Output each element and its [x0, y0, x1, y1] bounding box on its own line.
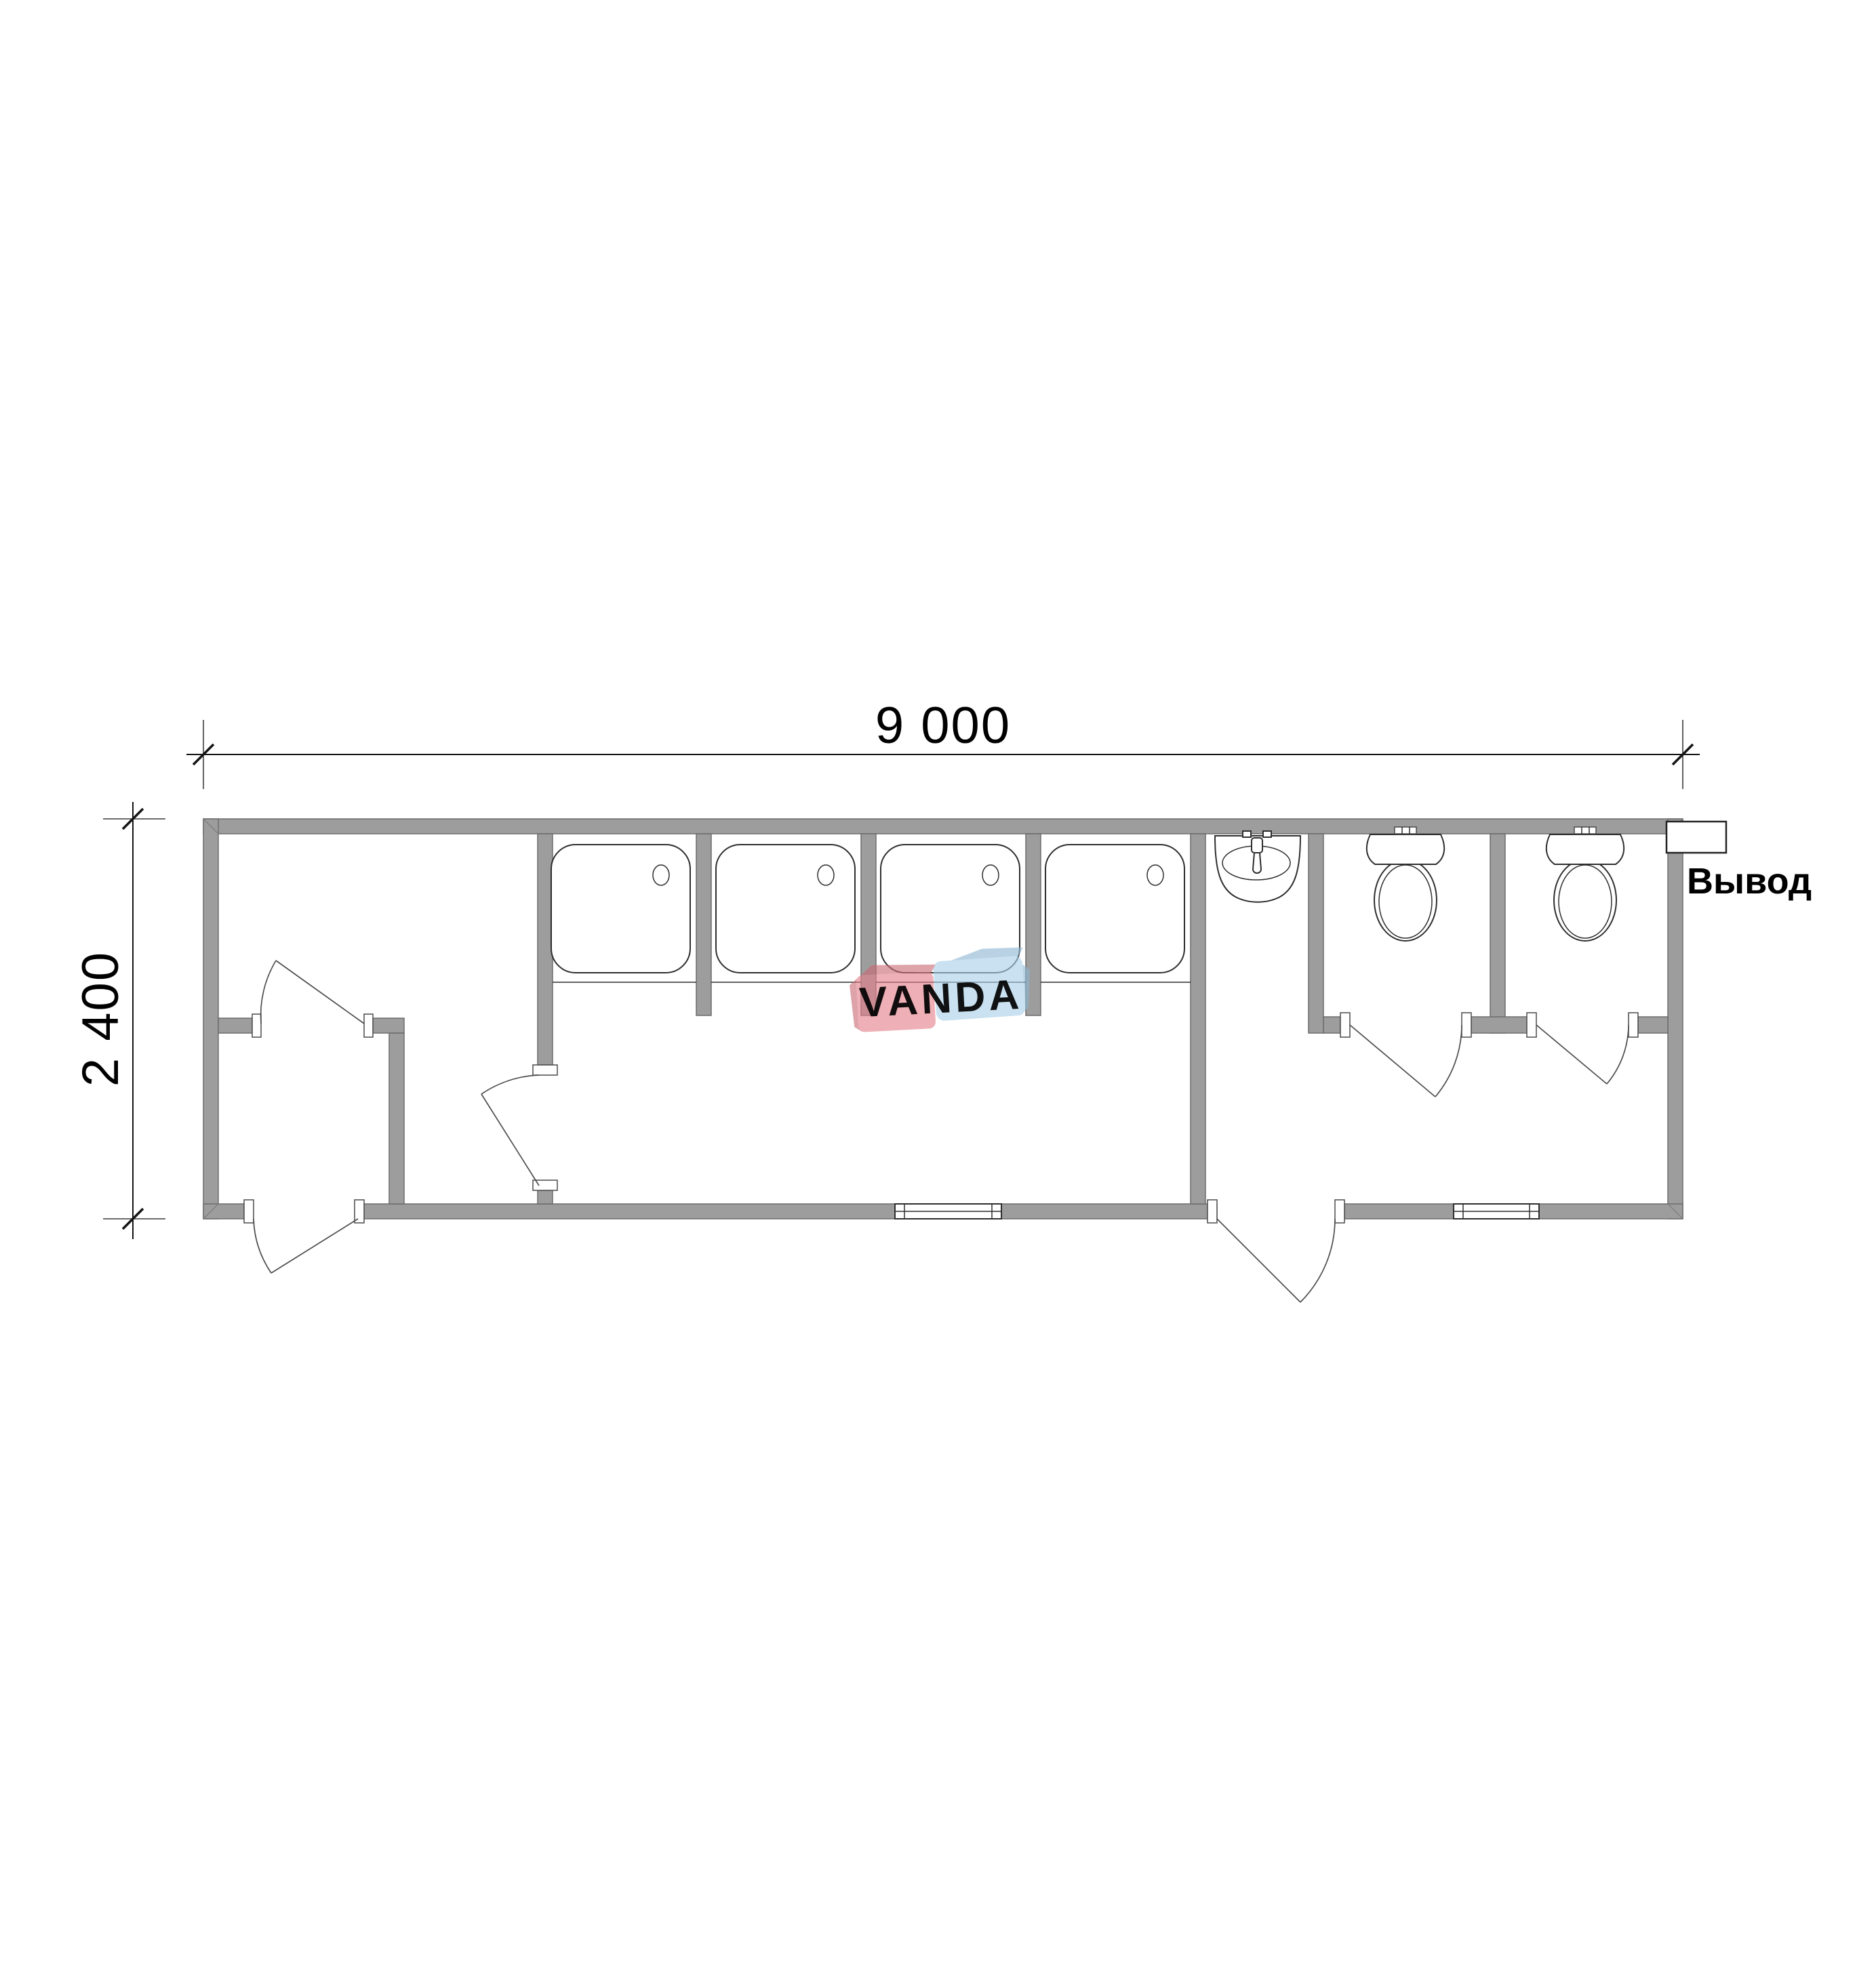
wall-exterior-bottom-seg3 — [1001, 1204, 1217, 1219]
door-leaf — [276, 961, 364, 1024]
wall-vestibule-corner-vertical — [389, 1033, 404, 1204]
floor-plan-page: 9 000 2 400 — [0, 0, 1876, 1976]
jamb-wc1-left — [1340, 1013, 1350, 1037]
door-leaf — [1536, 1025, 1607, 1084]
outlet-label: Вывод — [1687, 861, 1812, 902]
jamb-entrance1-left — [244, 1200, 254, 1223]
door-leaf — [1217, 1219, 1300, 1302]
toilet-cistern — [1367, 834, 1444, 864]
jamb-wc2-left — [1527, 1013, 1536, 1037]
faucet-mount-right — [1263, 831, 1271, 837]
door-wc-stall-1 — [1350, 1025, 1462, 1097]
door-wc-stall-2 — [1536, 1025, 1629, 1084]
wall-exterior-bottom-seg1 — [203, 1204, 244, 1219]
jamb-vestibule-left — [252, 1014, 261, 1037]
wall-shower-room-divider-upper — [538, 834, 553, 1065]
shower-tray-1 — [551, 845, 690, 973]
door-shower-room-interior — [481, 1075, 539, 1186]
jamb-wc2-right — [1629, 1013, 1638, 1037]
washbasin — [1215, 831, 1300, 902]
wall-exterior-right — [1668, 819, 1683, 1219]
wall-wc-front-seg1 — [1323, 1017, 1340, 1033]
floor-plan-drawing: 9 000 2 400 — [0, 0, 1876, 1976]
shower-tray-4 — [1045, 845, 1184, 973]
faucet-spout — [1253, 853, 1261, 873]
outlet-box — [1667, 822, 1726, 853]
shower-tray-2 — [716, 845, 855, 973]
toilet-inlet-vent — [1395, 827, 1416, 834]
toilet-cistern — [1546, 834, 1624, 864]
door-swing-arc — [1607, 1025, 1629, 1084]
dimension-width: 9 000 — [186, 697, 1700, 789]
toilet-bowl-outer — [1554, 860, 1616, 941]
wall-wc1-left — [1309, 834, 1323, 1033]
wall-wc-stall-divider — [1490, 834, 1505, 1033]
door-entrance-right-exterior — [1217, 1219, 1335, 1302]
wall-exterior-bottom-seg2 — [364, 1204, 895, 1219]
wall-exterior-bottom-seg4 — [1344, 1204, 1454, 1219]
height-dimension-label: 2 400 — [72, 951, 129, 1087]
wall-vestibule-stub — [218, 1018, 252, 1033]
wall-wc-front-seg3 — [1638, 1017, 1668, 1033]
faucet-mount-left — [1243, 831, 1251, 837]
jamb-shower-room-top — [533, 1065, 557, 1075]
door-swing-arc — [1435, 1025, 1462, 1097]
wall-shower-room-divider-stub — [538, 1190, 553, 1204]
jamb-entrance2-left — [1208, 1200, 1217, 1223]
wall-exterior-top — [203, 819, 1683, 834]
door-entrance-left-exterior — [254, 1219, 358, 1273]
wall-shower-partition-1 — [696, 834, 711, 1015]
window-1 — [895, 1204, 1001, 1219]
toilet-inlet-vent — [1574, 827, 1596, 834]
door-swing-arc — [481, 1075, 539, 1094]
width-dimension-label: 9 000 — [875, 697, 1011, 754]
door-jambs — [244, 1013, 1638, 1223]
toilet-bowl-outer — [1374, 860, 1437, 941]
faucet-body — [1252, 838, 1262, 853]
toilet-1 — [1367, 827, 1444, 941]
jamb-entrance2-right — [1335, 1200, 1344, 1223]
door-swing-arc — [261, 961, 276, 1024]
door-leaf — [481, 1094, 539, 1186]
wall-shower-wc-divider — [1191, 834, 1205, 1204]
toilet-2 — [1546, 827, 1624, 941]
wall-exterior-bottom-seg5 — [1539, 1204, 1683, 1219]
door-leaf — [271, 1219, 358, 1273]
door-leaf — [1350, 1025, 1435, 1097]
jamb-wc1-right — [1462, 1013, 1471, 1037]
window-2 — [1454, 1204, 1539, 1219]
door-vestibule-interior — [261, 961, 364, 1024]
wall-vestibule-corner-horizontal — [373, 1018, 404, 1033]
jamb-vestibule-right — [364, 1014, 373, 1037]
wall-wc-front-seg2 — [1471, 1017, 1527, 1033]
door-swing-arc — [1300, 1219, 1335, 1302]
dimension-height: 2 400 — [72, 802, 165, 1239]
door-swing-arc — [254, 1219, 271, 1273]
utility-outlet: Вывод — [1667, 822, 1812, 902]
wall-exterior-left — [203, 819, 218, 1219]
logo-text: VANDA — [858, 971, 1024, 1027]
